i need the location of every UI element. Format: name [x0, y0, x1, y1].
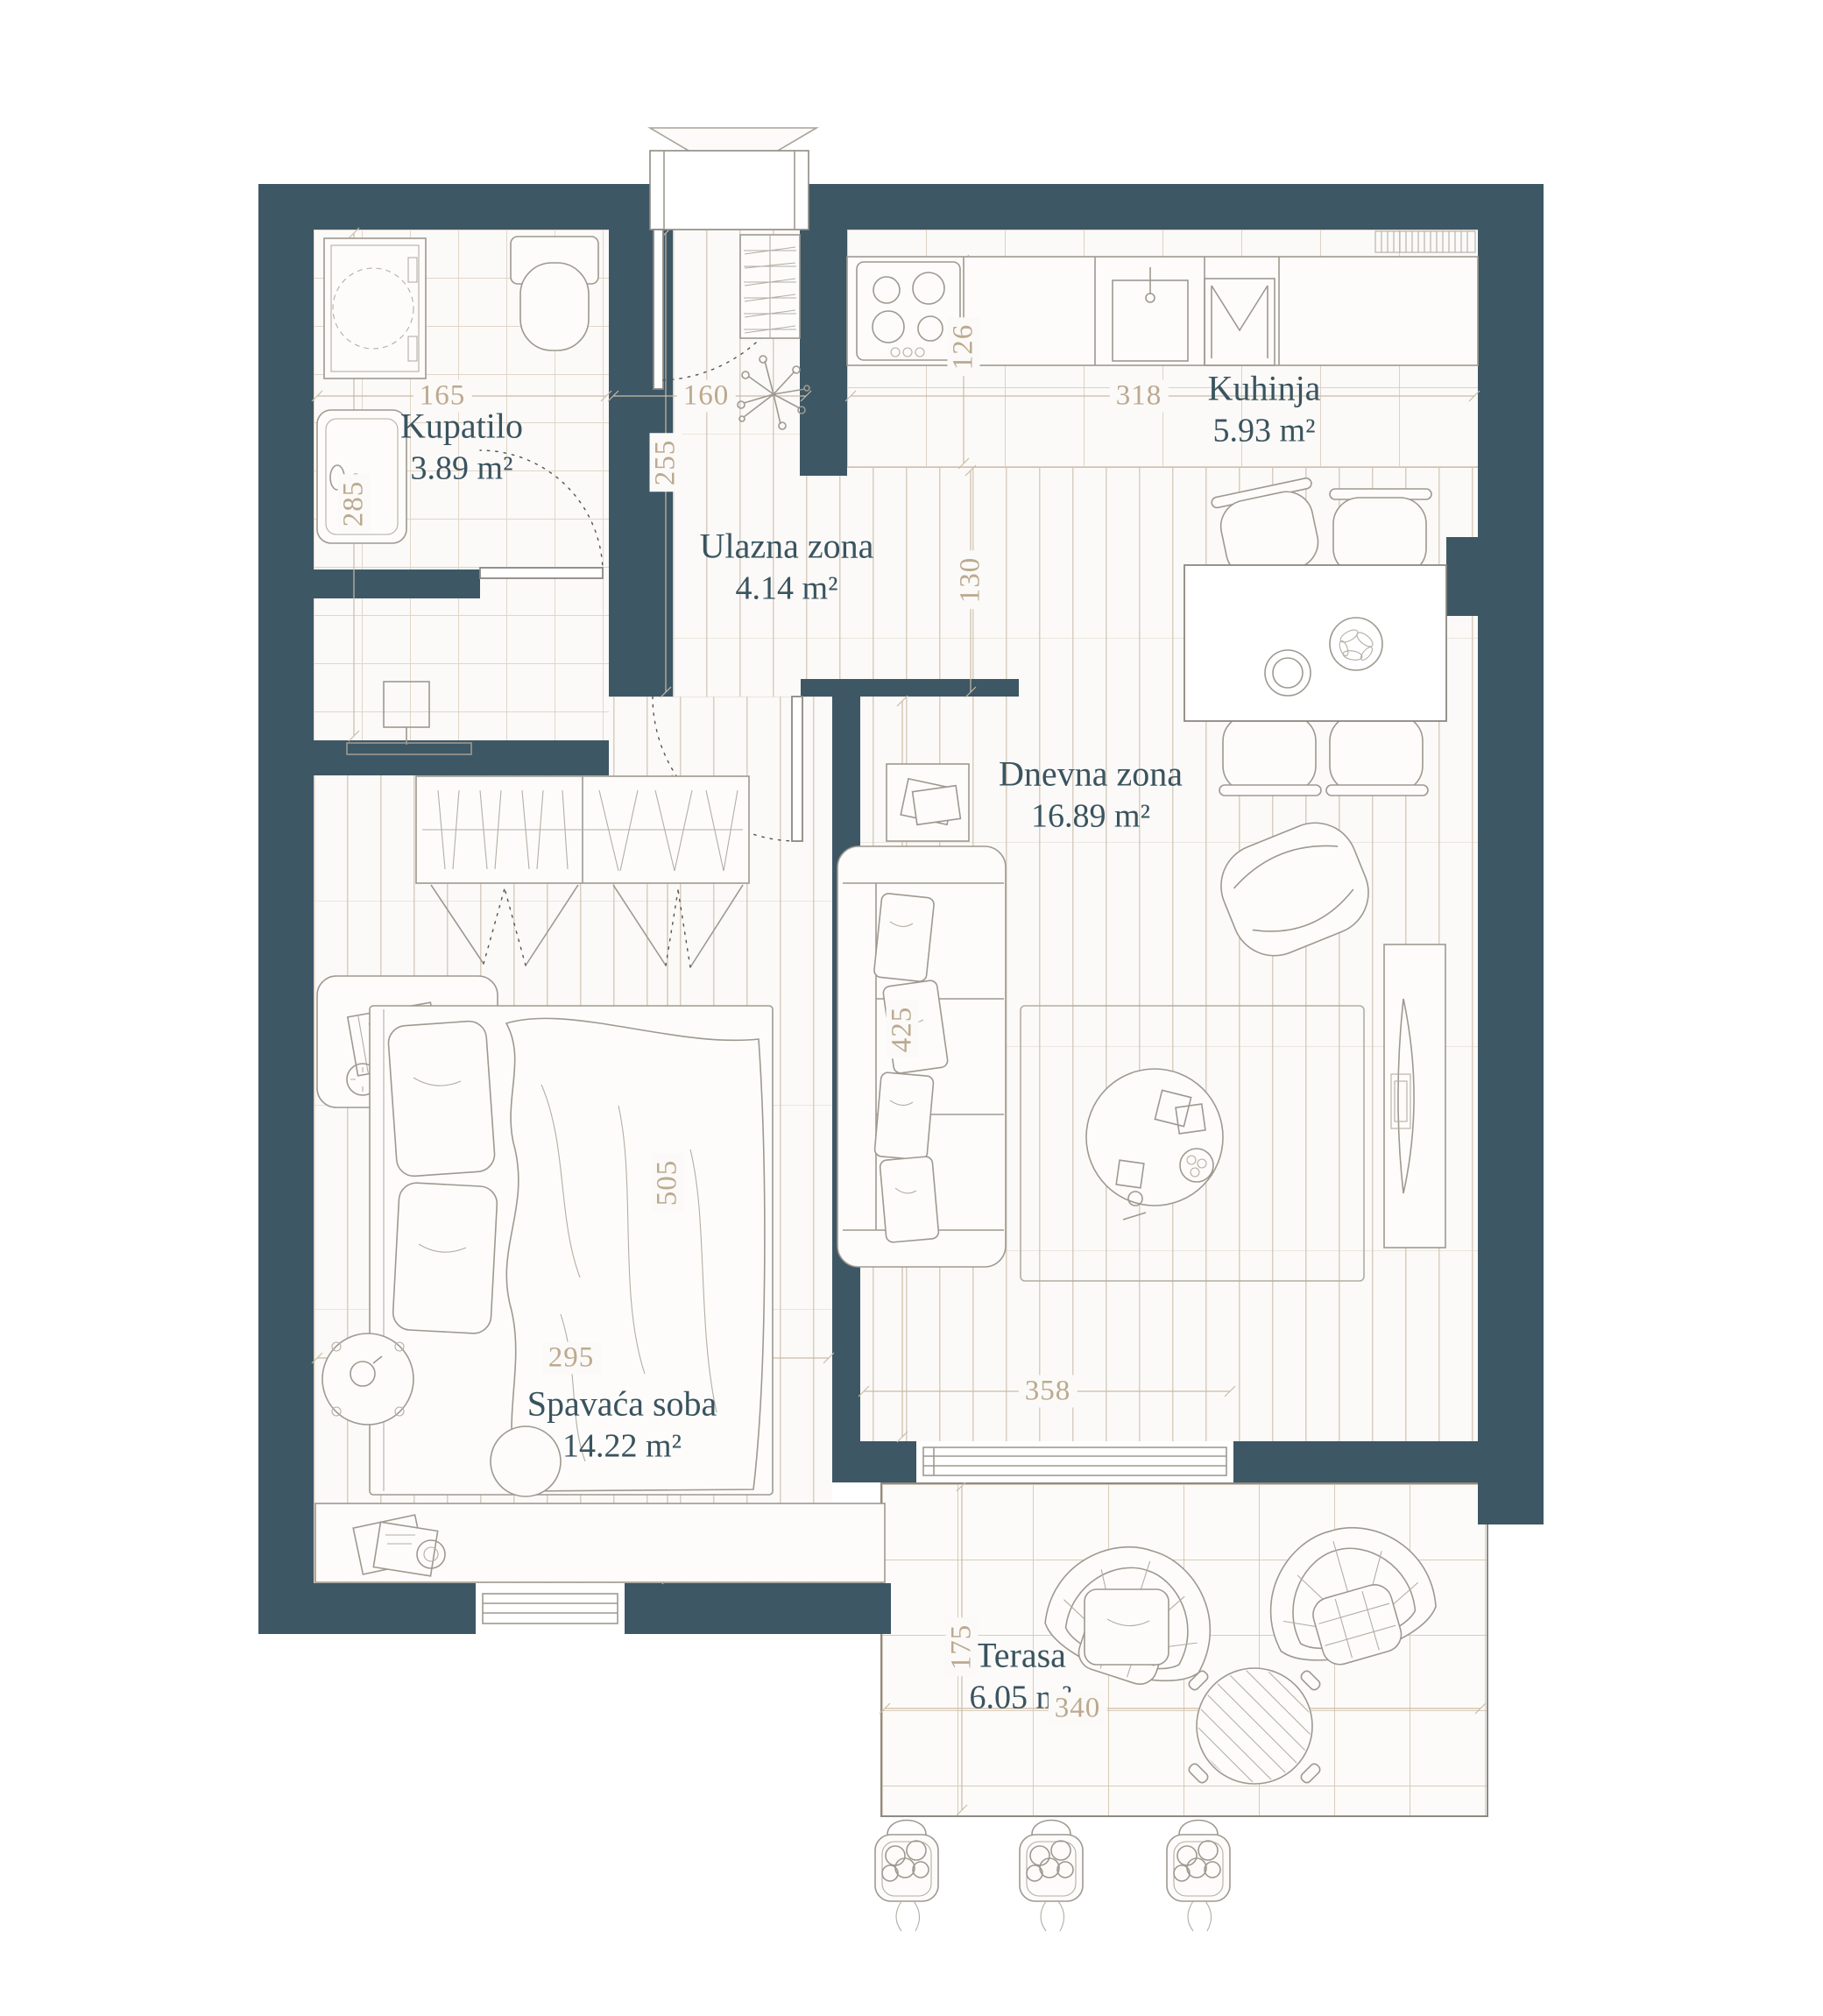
room-label-spavaca-soba: Spavaća soba 14.22 m² — [527, 1383, 717, 1466]
terrace-table — [1183, 1649, 1326, 1814]
dimension-165: 165 — [413, 380, 472, 413]
shower-niche-fixture — [347, 682, 471, 754]
shoe-shelf — [740, 235, 800, 338]
room-name: Ulazna zona — [700, 525, 874, 568]
dining-table — [1184, 565, 1446, 721]
side-table — [887, 764, 969, 841]
coffee-table — [1086, 1069, 1223, 1220]
room-area: 14.22 m² — [527, 1425, 717, 1466]
radiator — [1375, 231, 1475, 252]
dimension-505: 505 — [652, 1154, 684, 1213]
room-name: Spavaća soba — [527, 1383, 717, 1425]
dimension-255: 255 — [650, 434, 682, 492]
room-name: Dnevna zona — [999, 753, 1183, 796]
dimension-295: 295 — [542, 1342, 601, 1375]
room-area: 3.89 m² — [400, 448, 523, 488]
washing-machine — [324, 238, 426, 378]
dimension-175: 175 — [946, 1618, 979, 1677]
dimension-130: 130 — [955, 551, 987, 610]
floor-plan: Kupatilo 3.89 m² Ulazna zona 4.14 m² Kuh… — [0, 0, 1823, 2016]
room-area: 5.93 m² — [1208, 410, 1321, 450]
dimension-425: 425 — [887, 1001, 919, 1059]
dimension-126: 126 — [948, 318, 980, 377]
dimension-160: 160 — [677, 380, 736, 413]
dimension-340: 340 — [1049, 1693, 1107, 1725]
room-area: 4.14 m² — [700, 568, 874, 608]
bedroom-window — [476, 1583, 625, 1634]
hall-plant — [738, 356, 809, 429]
toilet — [511, 237, 598, 350]
wardrobe — [416, 776, 749, 967]
room-label-dnevna-zona: Dnevna zona 16.89 m² — [999, 753, 1183, 836]
kitchen-counter — [847, 257, 1478, 365]
dimension-318: 318 — [1110, 380, 1169, 413]
room-label-ulazna-zona: Ulazna zona 4.14 m² — [700, 525, 874, 608]
dimension-358: 358 — [1019, 1376, 1078, 1408]
low-bench — [315, 1503, 885, 1582]
wicker-chair-right — [1251, 1509, 1445, 1680]
dimension-285: 285 — [338, 475, 371, 534]
sliding-door — [916, 1441, 1233, 1482]
room-label-kupatilo: Kupatilo 3.89 m² — [400, 405, 523, 488]
room-area: 16.89 m² — [999, 796, 1183, 836]
armchair — [1208, 810, 1381, 968]
bedroom-round-table — [322, 1333, 413, 1425]
tv-stand — [1384, 944, 1445, 1248]
room-name: Kuhinja — [1208, 367, 1321, 410]
sofa — [837, 846, 1006, 1267]
room-label-kuhinja: Kuhinja 5.93 m² — [1208, 367, 1321, 450]
flower-pots — [875, 1821, 1230, 1932]
room-name: Terasa — [970, 1634, 1072, 1677]
